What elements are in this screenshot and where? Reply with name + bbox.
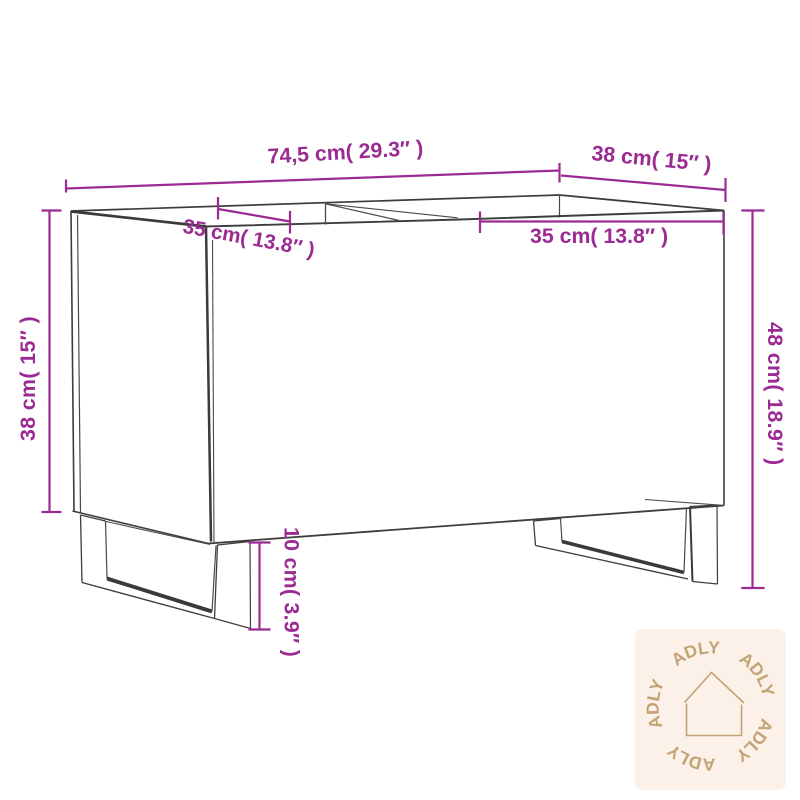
svg-text:74,5 cm( 29.3″ ): 74,5 cm( 29.3″ ) xyxy=(267,136,424,169)
svg-text:48 cm( 18.9″ ): 48 cm( 18.9″ ) xyxy=(763,322,787,466)
svg-text:35 cm( 13.8″ ): 35 cm( 13.8″ ) xyxy=(181,215,316,262)
svg-text:35 cm( 13.8″ ): 35 cm( 13.8″ ) xyxy=(530,224,668,248)
svg-text:38 cm( 15″ ): 38 cm( 15″ ) xyxy=(591,141,713,176)
svg-text:10 cm( 3.9″ ): 10 cm( 3.9″ ) xyxy=(280,527,304,657)
svg-text:38 cm( 15″ ): 38 cm( 15″ ) xyxy=(16,316,40,441)
